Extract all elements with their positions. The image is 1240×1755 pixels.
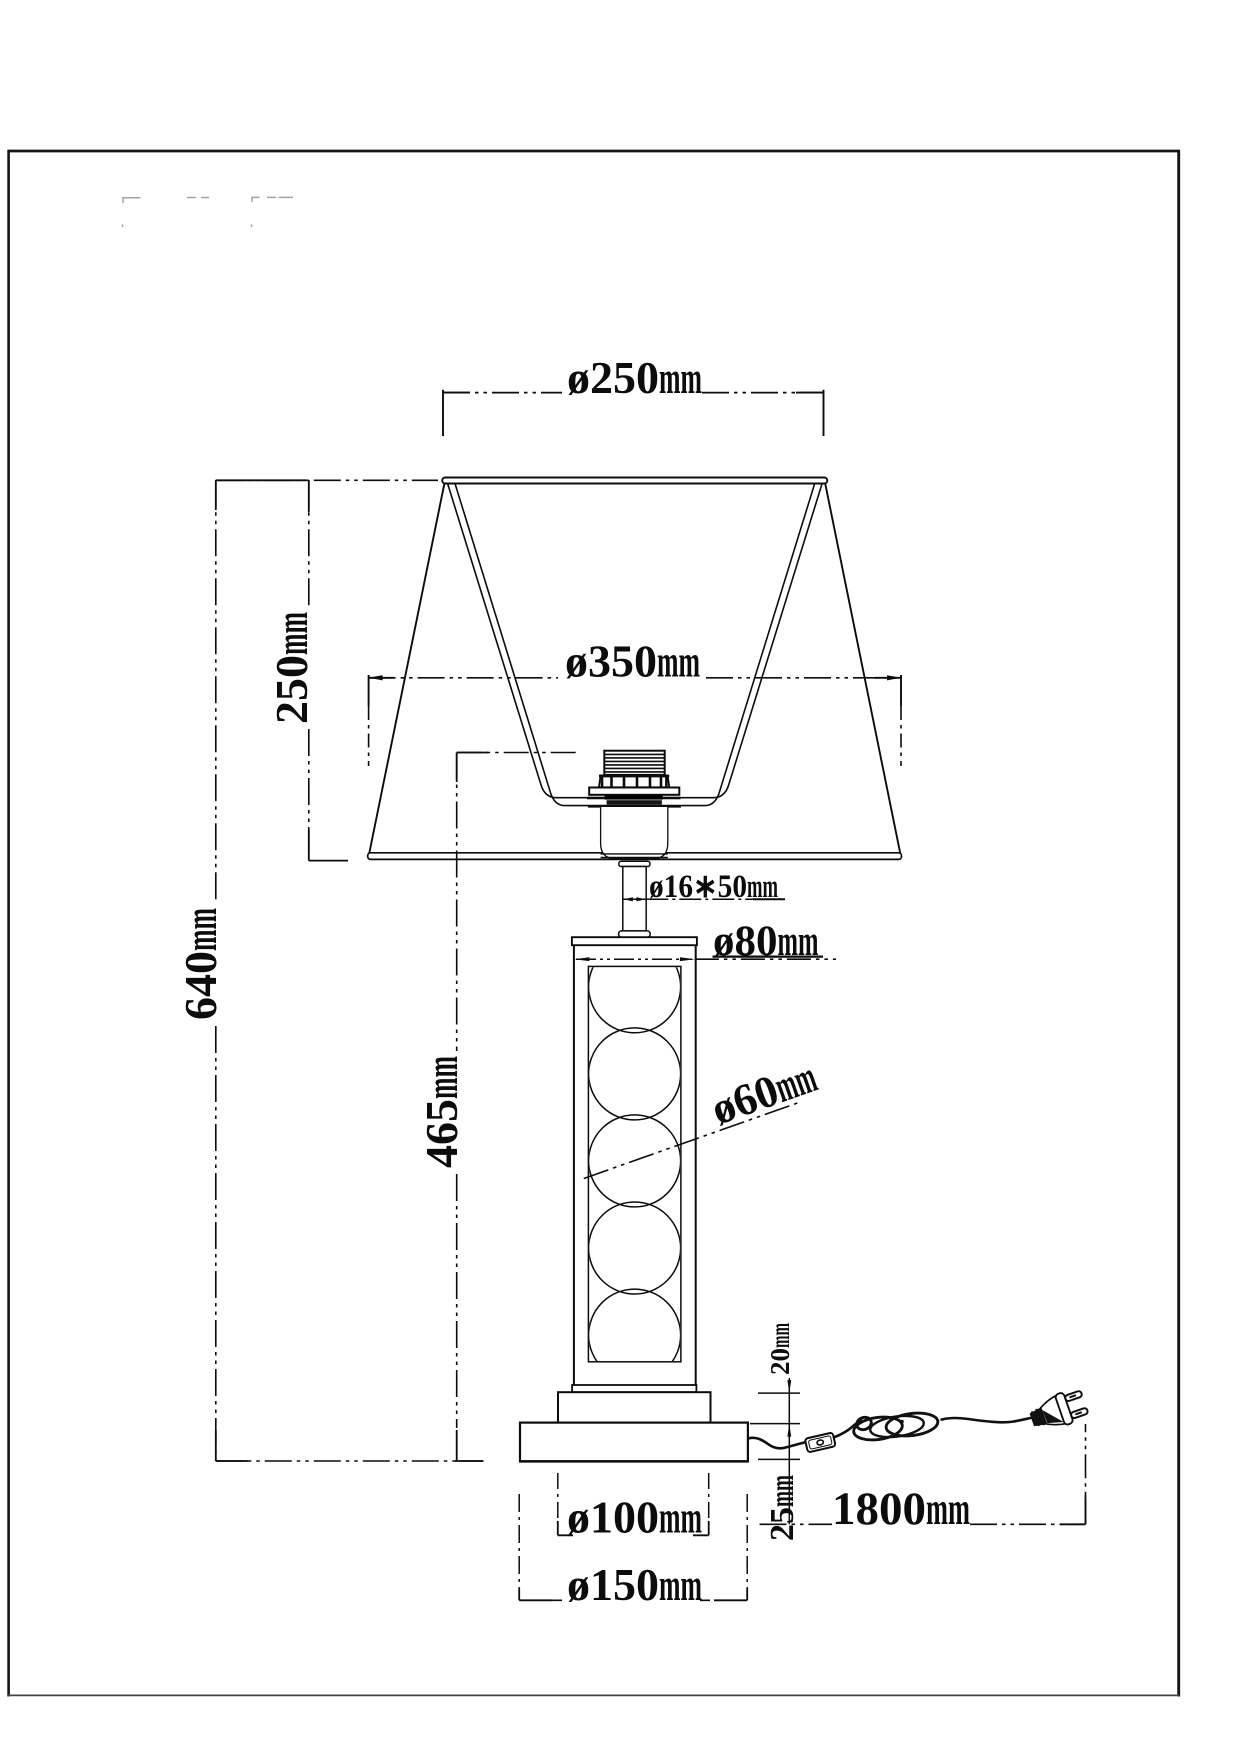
svg-text:465mm: 465mm bbox=[416, 1056, 467, 1168]
svg-text:ø350mm: ø350mm bbox=[565, 636, 700, 687]
svg-text:ø250mm: ø250mm bbox=[567, 352, 702, 403]
svg-text:ø100mm: ø100mm bbox=[567, 1492, 702, 1543]
svg-text:25mm: 25mm bbox=[764, 1475, 801, 1541]
svg-text:640mm: 640mm bbox=[175, 908, 226, 1020]
svg-text:20mm: 20mm bbox=[765, 1323, 795, 1375]
svg-text:ø60mm: ø60mm bbox=[705, 1051, 823, 1134]
svg-text:250mm: 250mm bbox=[266, 612, 317, 724]
svg-text:ø80mm: ø80mm bbox=[713, 918, 819, 965]
svg-text:1800mm: 1800mm bbox=[832, 1483, 970, 1535]
svg-text:ø150mm: ø150mm bbox=[567, 1559, 702, 1610]
svg-text:ø16∗50mm: ø16∗50mm bbox=[649, 869, 778, 905]
